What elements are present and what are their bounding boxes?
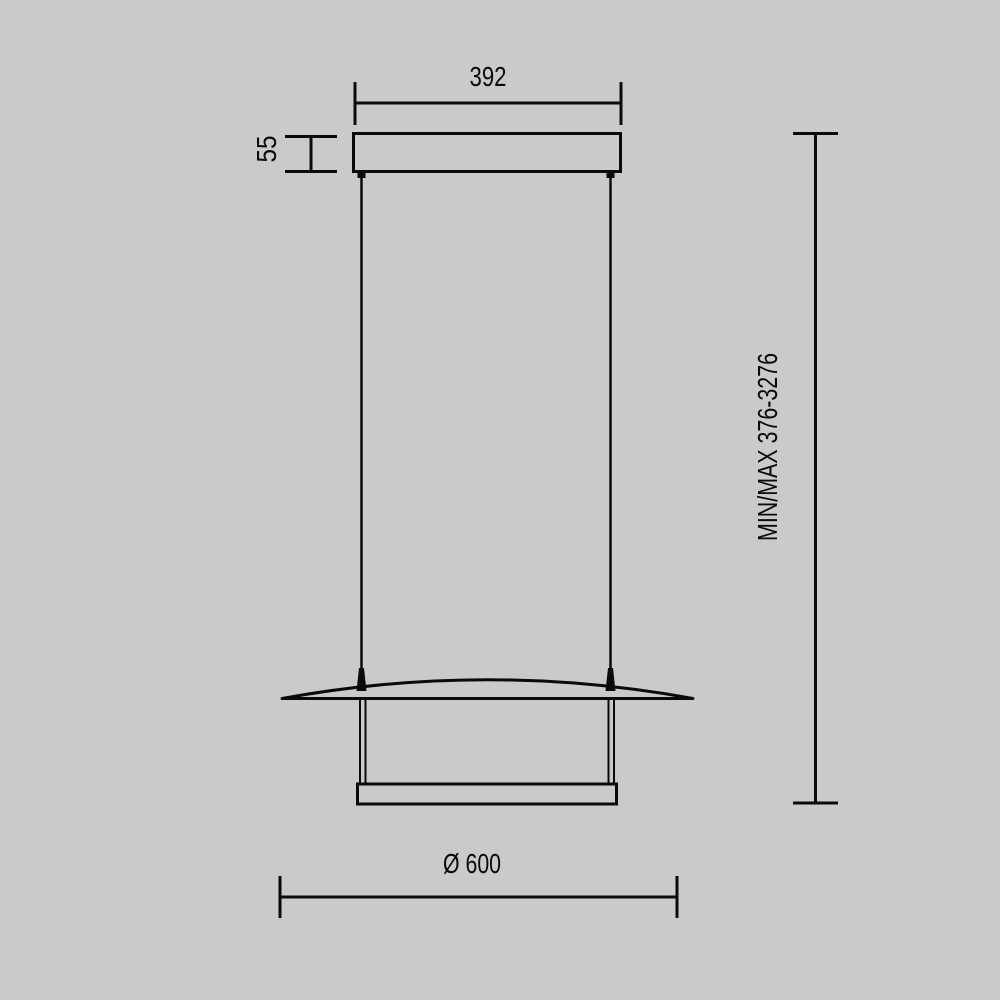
support-rod-left bbox=[360, 699, 366, 784]
light-bar bbox=[358, 784, 617, 804]
dimension-canopy-width: 392 bbox=[355, 61, 621, 125]
dimension-shade-diameter: Ø 600 bbox=[280, 848, 677, 918]
dimension-canopy-height: 55 bbox=[251, 136, 337, 172]
lamp-fixture bbox=[282, 134, 693, 805]
dim-width-label: 392 bbox=[470, 61, 507, 92]
shade bbox=[282, 680, 693, 699]
wire-attachment-left bbox=[358, 171, 366, 178]
dimension-suspension-range: MIN/MAX 376-3276 bbox=[752, 134, 838, 804]
wire-attachment-right bbox=[607, 171, 615, 178]
dim-diameter-label: Ø 600 bbox=[443, 848, 501, 879]
canopy bbox=[354, 134, 621, 172]
technical-drawing-canvas: 392 55 bbox=[0, 0, 1000, 1000]
dim-suspension-label: MIN/MAX 376-3276 bbox=[752, 353, 783, 541]
dim-height-label: 55 bbox=[251, 136, 282, 163]
pendant-lamp-dimension-drawing: 392 55 bbox=[0, 0, 1000, 1000]
support-rod-right bbox=[609, 699, 615, 784]
